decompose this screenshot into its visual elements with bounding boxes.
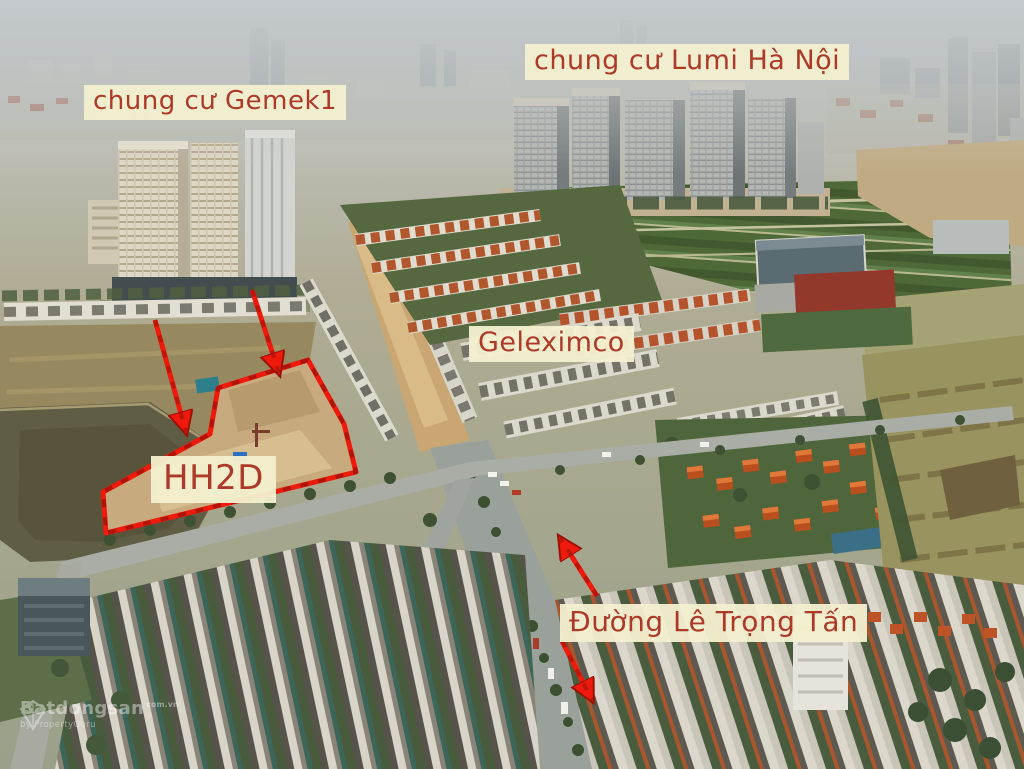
batdongsan-gem-icon xyxy=(20,700,46,730)
label-hh2d: HH2D xyxy=(151,456,276,503)
arrow-to-plot-east xyxy=(252,290,279,373)
aerial-photo: chung cư Lumi Hà Nội chung cư Gemek1 Gel… xyxy=(0,0,1024,769)
label-le-trong-tan-street: Đường Lê Trọng Tấn xyxy=(560,604,867,642)
hh2d-plot-outline xyxy=(103,360,356,533)
label-geleximco: Geleximco xyxy=(469,326,634,362)
batdongsan-watermark: Batdongsan com.vn by PropertyGuru xyxy=(20,700,179,730)
watermark-domain: com.vn xyxy=(146,701,179,709)
label-lumi-ha-noi: chung cư Lumi Hà Nội xyxy=(525,44,849,80)
label-gemek1: chung cư Gemek1 xyxy=(84,85,346,120)
